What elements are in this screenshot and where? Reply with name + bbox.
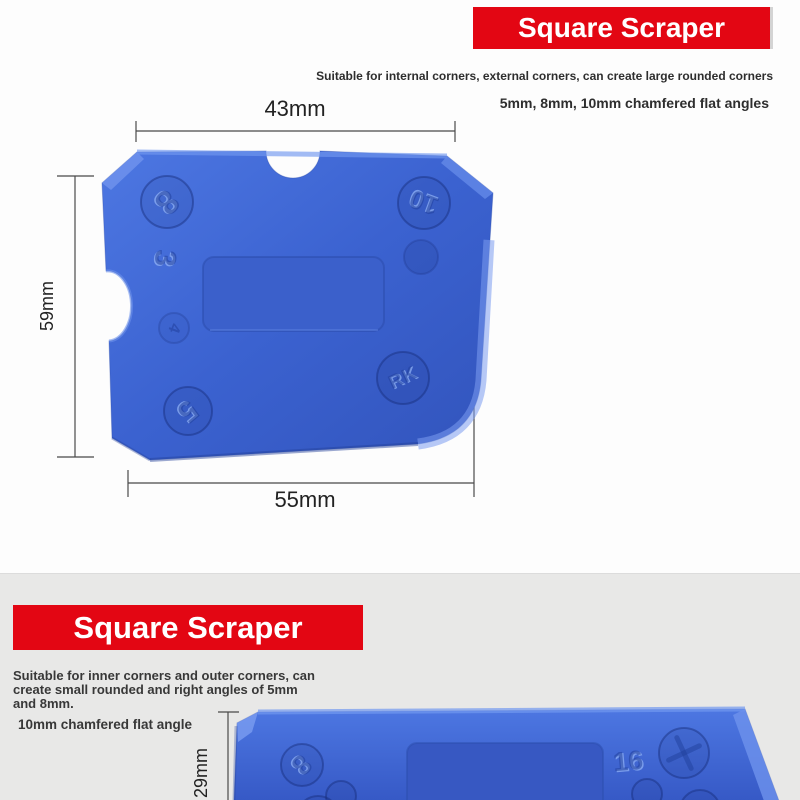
dim-label-59mm: 59mm (37, 281, 57, 331)
left-edge-shadow-2 (234, 726, 236, 800)
product-page: Square Scraper Suitable for internal cor… (0, 0, 800, 800)
bottom-product-panel: Square Scraper Suitable for inner corner… (0, 573, 800, 800)
dim-43mm: 43mm (136, 96, 455, 142)
dim-59mm: 59mm (37, 176, 94, 457)
top-product-panel: Square Scraper Suitable for internal cor… (0, 0, 800, 573)
marking-3: 3 (148, 248, 182, 268)
circle-small-3 (632, 779, 662, 800)
marking-16: 16 (612, 745, 645, 778)
top-edge-highlight-2 (258, 709, 745, 712)
scraper-bottom: 8 8 16 16 (234, 709, 779, 800)
dim-label-43mm: 43mm (264, 96, 325, 121)
dim-29mm: 29mm (191, 712, 239, 800)
dim-label-29mm: 29mm (191, 748, 211, 798)
recessed-rectangle (203, 257, 384, 331)
dim-label-55mm: 55mm (274, 487, 335, 512)
top-scraper-figure: 43mm 59mm 55mm (0, 0, 800, 573)
circle-plain (404, 240, 438, 274)
recessed-rectangle-2 (407, 743, 603, 800)
bottom-scraper-figure: 29mm 8 8 (0, 574, 800, 800)
scraper-top: 8 8 10 10 3 3 4 5 5 RK RK (102, 151, 493, 460)
